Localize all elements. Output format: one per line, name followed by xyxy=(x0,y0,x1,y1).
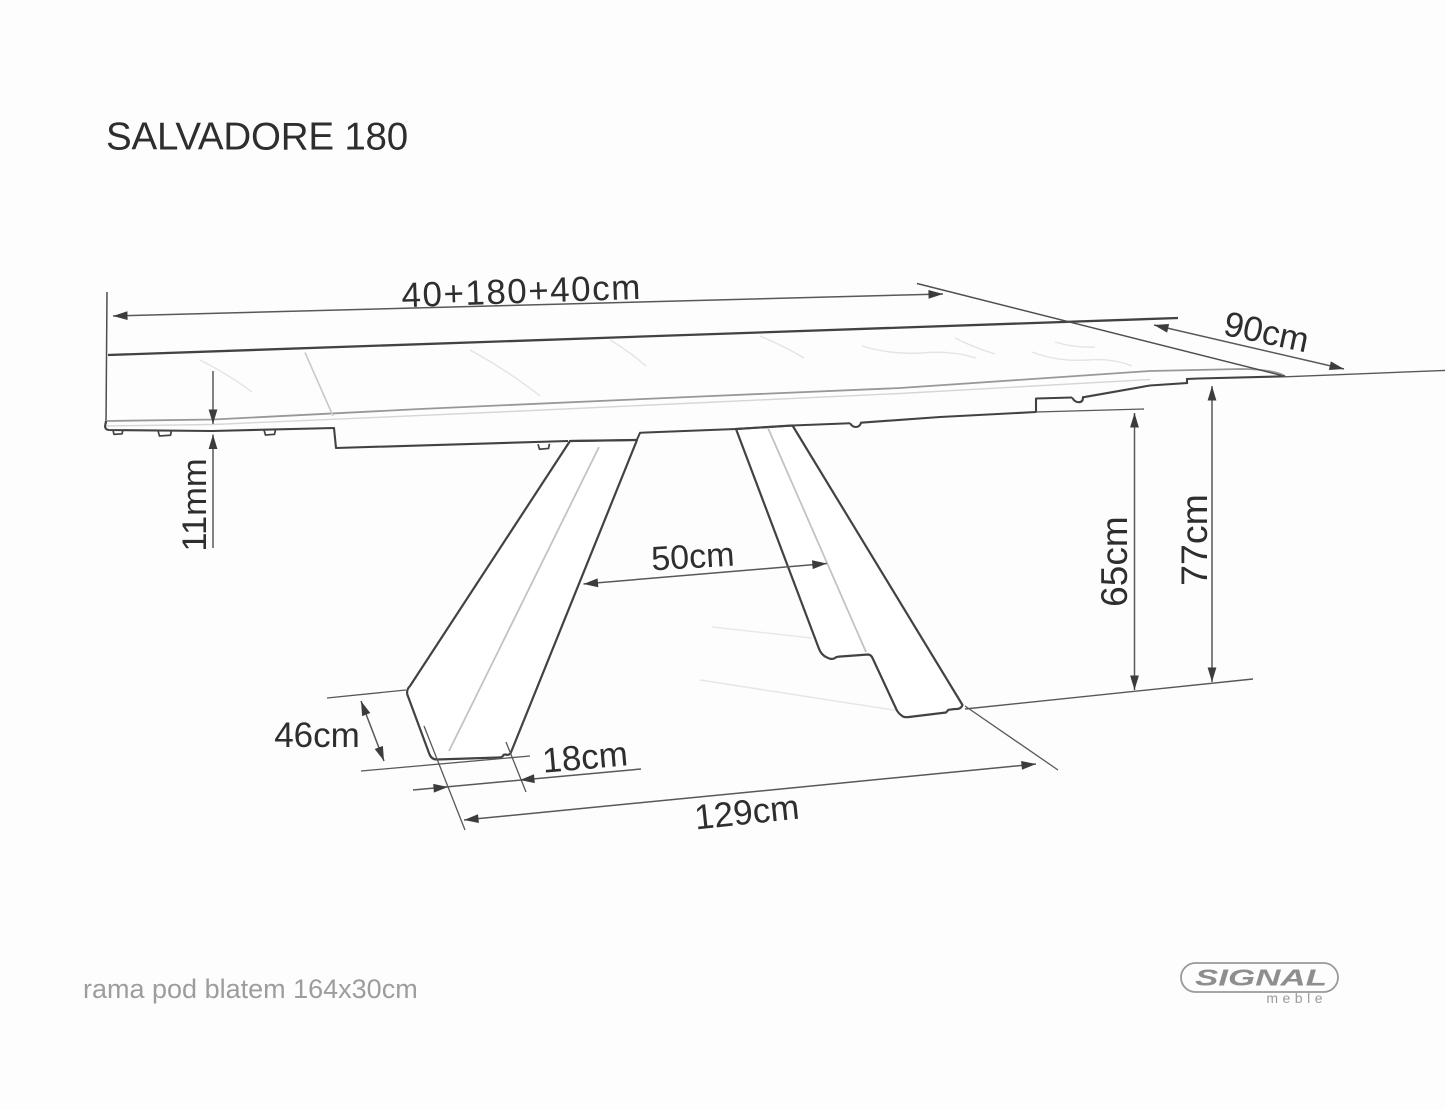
svg-text:77cm: 77cm xyxy=(1173,494,1215,586)
svg-text:SIGNAL: SIGNAL xyxy=(1195,965,1327,991)
svg-text:meble: meble xyxy=(1266,990,1327,1006)
svg-text:rama pod blatem 164x30cm: rama pod blatem 164x30cm xyxy=(83,974,418,1004)
svg-text:11mm: 11mm xyxy=(176,458,214,551)
svg-text:SALVADORE 180: SALVADORE 180 xyxy=(106,116,408,159)
svg-text:50cm: 50cm xyxy=(650,536,735,579)
svg-text:46cm: 46cm xyxy=(274,716,360,755)
svg-text:18cm: 18cm xyxy=(541,734,630,780)
svg-text:65cm: 65cm xyxy=(1094,516,1135,606)
